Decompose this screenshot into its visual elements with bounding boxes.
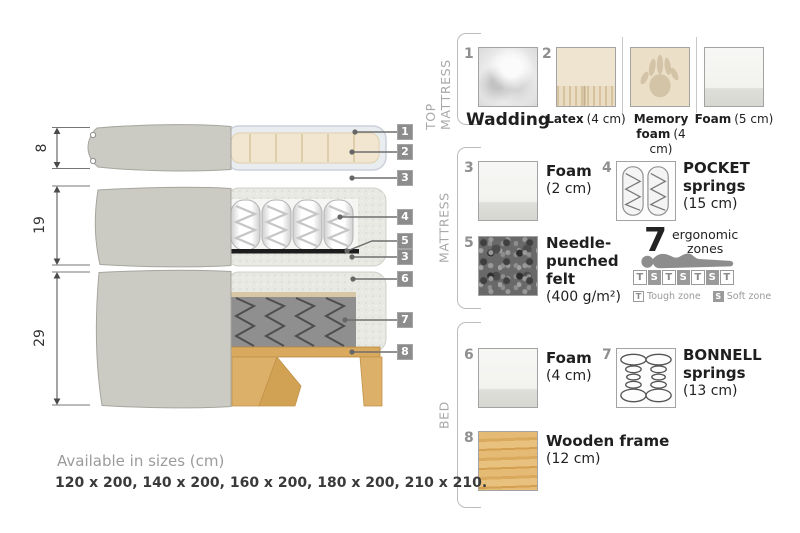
- label-foam5: Foam(5 cm): [692, 112, 776, 127]
- item-number-7: 7: [602, 347, 612, 363]
- legend-soft-zone: S Soft zone: [713, 291, 771, 302]
- top-mattress-fabric: [88, 125, 231, 171]
- pocket-springs-icon: [617, 162, 675, 220]
- foam5-name: Foam: [695, 112, 732, 126]
- label-latex: Latex(4 cm): [540, 112, 632, 127]
- bonnell-springs-name: BONNELL springs: [683, 346, 763, 382]
- wooden-frame-layer: [230, 347, 382, 406]
- foam2-name: Foam: [546, 162, 592, 180]
- label-needle-felt: Needle-punched felt (400 g/m²): [546, 234, 626, 306]
- bonnell-springs-layer: [230, 292, 356, 350]
- felt-layer: [229, 249, 359, 254]
- available-sizes-title: Available in sizes (cm): [57, 452, 224, 470]
- mattress-button-bottom: [90, 158, 95, 163]
- mattress-button-top: [90, 132, 95, 137]
- soft-zone-label: Soft zone: [727, 291, 771, 302]
- wooden-frame-size: (12 cm): [546, 451, 669, 468]
- bonnell-springs-thumbnail: [616, 348, 676, 408]
- latex-size: (4 cm): [587, 112, 626, 126]
- dimension-top-mattress: 8: [34, 144, 50, 153]
- dimension-arrows: [52, 128, 90, 406]
- zone-box-4: S: [677, 270, 691, 285]
- zone-box-2: S: [648, 270, 662, 285]
- zone-box-1: T: [633, 270, 647, 285]
- foam4-size: (4 cm): [546, 368, 592, 385]
- label-memory-foam: Memory foam(4 cm): [624, 112, 698, 157]
- layer-tag-1: 1: [397, 124, 413, 140]
- dimension-mattress: 19: [32, 216, 48, 234]
- layer-tag-8: 8: [397, 344, 413, 360]
- needle-felt-thumbnail: [478, 236, 538, 296]
- foam4-name: Foam: [546, 349, 592, 367]
- section-label-mattress: MATTRESS: [436, 147, 452, 309]
- needle-felt-size: (400 g/m²): [546, 289, 626, 306]
- soft-zone-icon: S: [713, 291, 724, 302]
- zone-legend: T Tough zone S Soft zone: [633, 291, 771, 302]
- hand-imprint-icon: [631, 48, 689, 106]
- option-divider-1: [622, 37, 623, 113]
- bed-base-fabric: [96, 270, 231, 408]
- latex-thumbnail: [556, 47, 616, 107]
- zone-box-3: T: [662, 270, 676, 285]
- foam2-size: (2 cm): [546, 181, 592, 198]
- latex-name: Latex: [546, 112, 583, 126]
- zone-boxes-row: T S T S T S T: [633, 270, 734, 285]
- dimension-bed-base: 29: [32, 329, 48, 347]
- bonnell-springs-size: (13 cm): [683, 383, 763, 400]
- item-number-4: 4: [602, 160, 612, 176]
- memory-foam-thumbnail: [630, 47, 690, 107]
- wadding-name: Wadding: [466, 110, 550, 130]
- wadding-thumbnail: [478, 47, 538, 107]
- layer-tag-3: 3: [397, 170, 413, 186]
- item-number-1: 1: [464, 46, 474, 62]
- layer-tag-4: 4: [397, 209, 413, 225]
- pocket-springs-name: POCKET springs: [683, 159, 763, 195]
- foam5-size: (5 cm): [734, 112, 773, 126]
- needle-felt-name: Needle-punched felt: [546, 234, 626, 288]
- zone-box-6: S: [706, 270, 720, 285]
- bonnell-springs-icon: [617, 349, 675, 407]
- foam2-thumbnail: [478, 161, 538, 221]
- option-divider-2: [696, 37, 697, 113]
- pocket-springs-thumbnail: [616, 161, 676, 221]
- label-foam4: Foam (4 cm): [546, 349, 592, 385]
- bed-base-cutaway: [226, 272, 386, 406]
- label-foam2: Foam (2 cm): [546, 162, 592, 198]
- label-wooden-frame: Wooden frame (12 cm): [546, 432, 669, 468]
- section-label-top-mattress: TOP MATTRESS: [430, 28, 446, 130]
- layer-tag-5: 5: [397, 233, 413, 249]
- layer-tag-2: 2: [397, 144, 413, 160]
- wooden-frame-name: Wooden frame: [546, 432, 669, 450]
- legend-tough-zone: T Tough zone: [633, 291, 701, 302]
- item-number-5: 5: [464, 235, 474, 251]
- foam5-thumbnail: [704, 47, 764, 107]
- infographic-canvas: 8 19 29: [0, 0, 800, 533]
- item-number-8: 8: [464, 430, 474, 446]
- zone-box-5: T: [691, 270, 705, 285]
- label-pocket-springs: POCKET springs (15 cm): [683, 159, 763, 213]
- zone-box-7: T: [720, 270, 734, 285]
- pocket-springs-size: (15 cm): [683, 196, 763, 213]
- lying-person-icon: [632, 247, 744, 271]
- tough-zone-icon: T: [633, 291, 644, 302]
- layer-tag-3b: 3: [397, 249, 413, 265]
- item-number-6: 6: [464, 347, 474, 363]
- ergonomic-word1: ergonomic: [672, 228, 738, 242]
- item-number-3: 3: [464, 160, 474, 176]
- mattress-cutaway: [226, 188, 386, 266]
- available-sizes-list: 120 x 200, 140 x 200, 160 x 200, 180 x 2…: [55, 475, 487, 491]
- layer-tag-6: 6: [397, 271, 413, 287]
- foam4-thumbnail: [478, 348, 538, 408]
- item-number-2: 2: [542, 46, 552, 62]
- tough-zone-label: Tough zone: [647, 291, 701, 302]
- label-bonnell-springs: BONNELL springs (13 cm): [683, 346, 763, 400]
- mattress-fabric: [95, 187, 231, 267]
- layer-tag-7: 7: [397, 312, 413, 328]
